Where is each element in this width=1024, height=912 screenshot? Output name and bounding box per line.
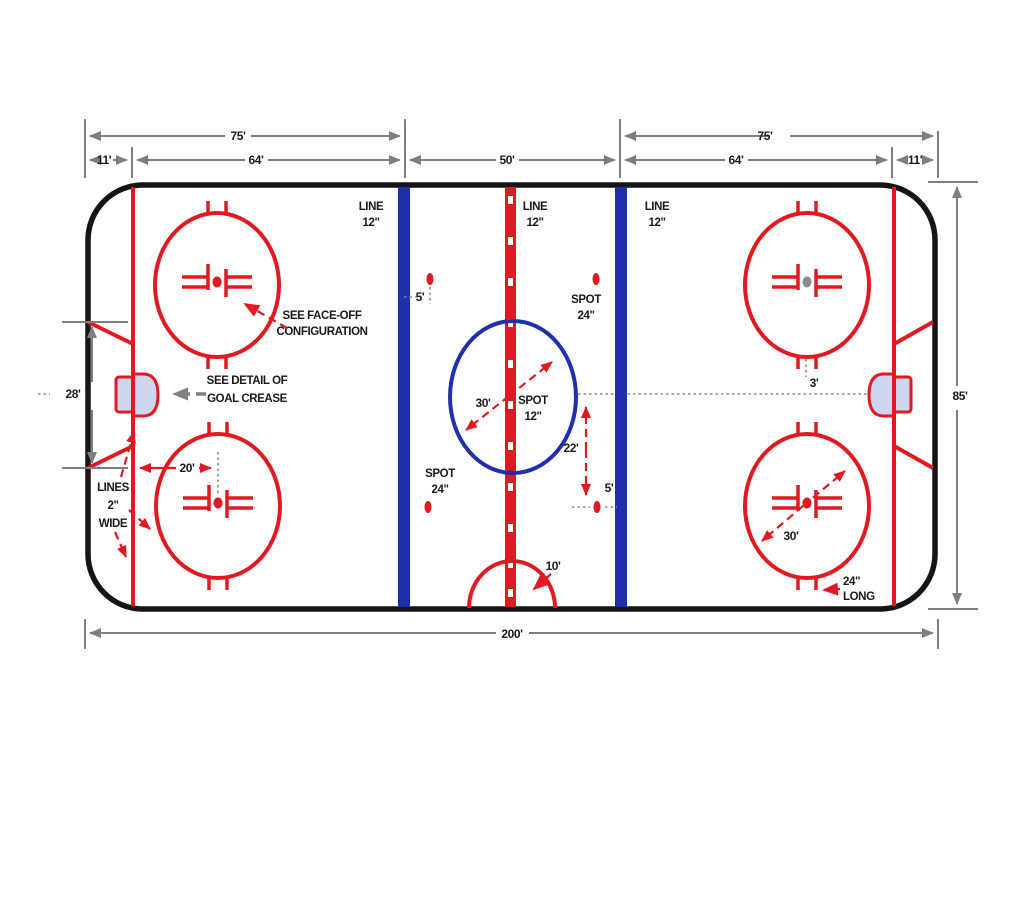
crease-note-line2: GOAL CREASE [207, 393, 287, 405]
lines-note-line3: WIDE [99, 518, 128, 530]
goal-crease-left [133, 374, 158, 416]
dim-75-right: 75' [757, 129, 773, 143]
dim-5-bottom: 5' [605, 481, 614, 495]
rink-diagram: 75' 75' 11' 64' 50' 64' 11' 85' 200' [0, 0, 1024, 912]
faceoff-dot-top-right [803, 277, 812, 288]
dim-200: 200' [501, 627, 523, 641]
dim-64-left: 64' [248, 153, 264, 167]
crease-note-line1: SEE DETAIL OF [207, 375, 288, 387]
spot12-center-1: SPOT [518, 395, 548, 407]
spot24-top-2: 24" [577, 310, 594, 322]
lines-note-line1: LINES [97, 482, 130, 494]
lines-note-line2: 2" [107, 500, 118, 512]
faceoff-dot-top-left [213, 277, 222, 288]
blue-line-left [398, 187, 410, 607]
spot24-top-1: SPOT [571, 294, 601, 306]
faceoff-dot-bottom-left [214, 498, 223, 509]
dim-10: 10' [545, 559, 561, 573]
dim-11-left: 11' [97, 153, 112, 167]
dim-64-right: 64' [728, 153, 744, 167]
dim-28: 28' [65, 387, 81, 401]
goal-left [116, 374, 158, 416]
dim-85: 85' [952, 389, 968, 403]
line12-center-2: 12" [526, 217, 543, 229]
dim-50-center: 50' [499, 153, 515, 167]
faceoff-note-line2: CONFIGURATION [276, 326, 367, 338]
goal-crease-right [869, 374, 894, 416]
top-dimensions: 75' 75' 11' 64' 50' 64' 11' [85, 119, 938, 178]
spot24-bottom-1: SPOT [425, 468, 455, 480]
dim-11-right: 11' [908, 153, 923, 167]
dim-5-top: 5' [416, 290, 425, 304]
dim-3: 3' [810, 376, 819, 390]
line12-right-1: LINE [645, 201, 670, 213]
dim-20: 20' [179, 461, 195, 475]
length-dimension-200: 200' [85, 619, 938, 649]
spot24-bottom-2: 24" [431, 484, 448, 496]
long24-line1: 24" [843, 576, 860, 588]
goal-right [869, 374, 911, 416]
line12-left-1: LINE [359, 201, 384, 213]
faceoff-note-line1: SEE FACE-OFF [283, 310, 362, 322]
dim-22: 22' [563, 441, 579, 455]
dim-30-center: 30' [475, 396, 491, 410]
long24-line2: LONG [843, 591, 875, 603]
spot12-center-2: 12" [524, 411, 541, 423]
rink-diagram-page: 75' 75' 11' 64' 50' 64' 11' 85' 200' [0, 0, 1024, 912]
line12-right-2: 12" [648, 217, 665, 229]
dim-75-left: 75' [230, 129, 246, 143]
line12-left-2: 12" [362, 217, 379, 229]
goal-net-right [894, 377, 911, 412]
goal-net-left [116, 377, 133, 412]
blue-line-right [615, 187, 627, 607]
dim-30-right: 30' [783, 529, 799, 543]
line12-center-1: LINE [523, 201, 548, 213]
